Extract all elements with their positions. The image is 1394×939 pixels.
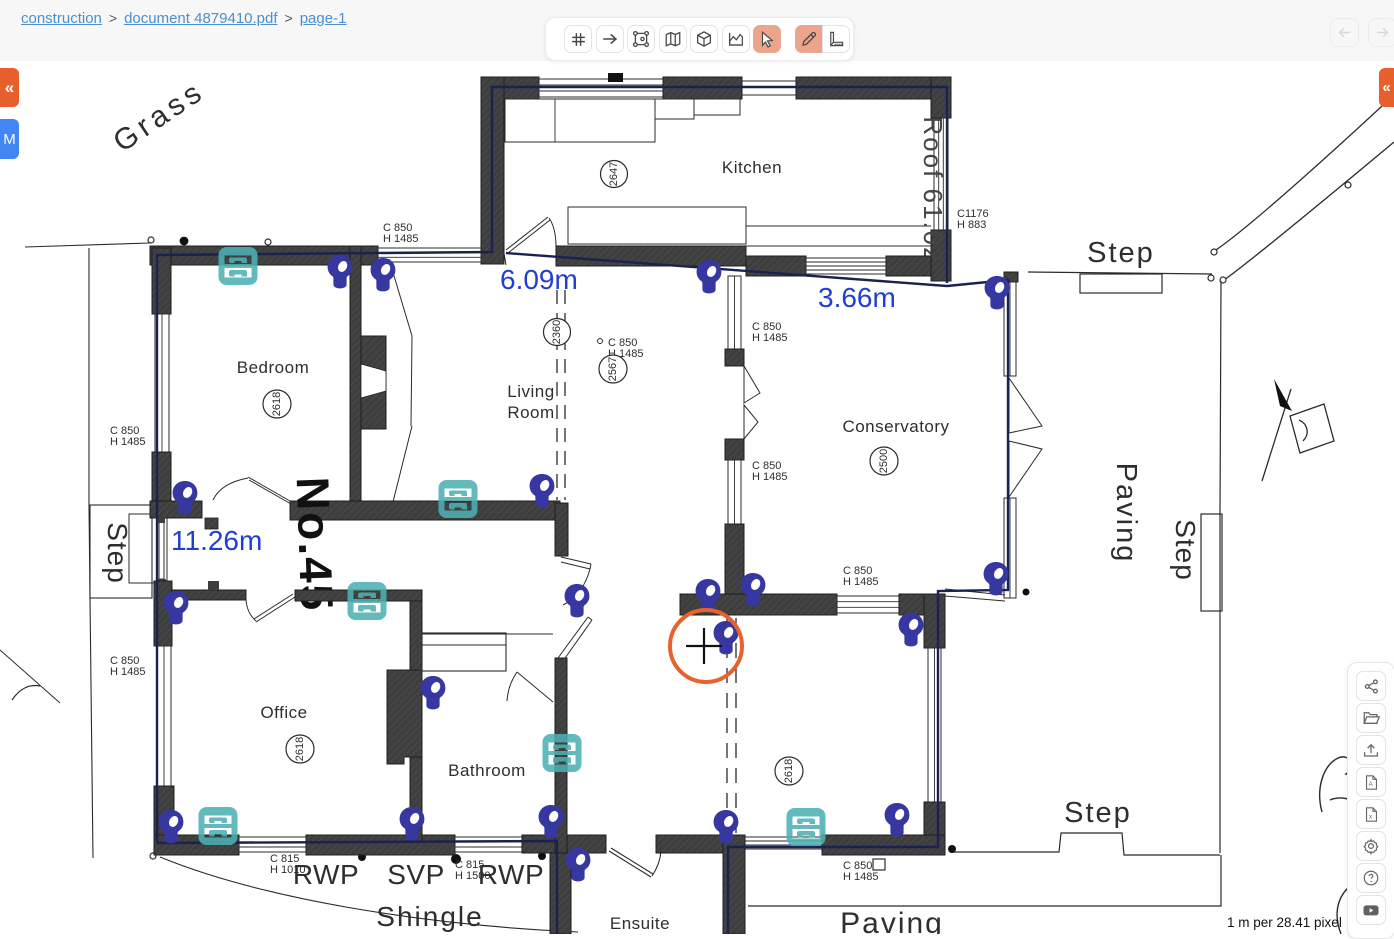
svg-text:Room: Room <box>507 403 554 422</box>
svg-text:Kitchen: Kitchen <box>722 158 782 177</box>
svg-text:Ensuite: Ensuite <box>610 914 670 933</box>
svg-text:Bedroom: Bedroom <box>237 358 309 377</box>
svg-text:Step: Step <box>1170 519 1201 581</box>
svg-text:Paving: Paving <box>1110 463 1142 564</box>
svg-text:2567: 2567 <box>607 357 619 381</box>
svg-text:Paving: Paving <box>840 907 944 934</box>
svg-text:Roof 61.02: Roof 61.02 <box>918 116 948 263</box>
svg-text:11.26m: 11.26m <box>171 525 262 556</box>
svg-text:H 883: H 883 <box>957 219 986 231</box>
svg-text:2618: 2618 <box>294 737 306 761</box>
svg-text:2360: 2360 <box>551 320 563 344</box>
svg-text:2618: 2618 <box>783 759 795 783</box>
svg-text:H 1485: H 1485 <box>752 332 787 344</box>
svg-text:RWP: RWP <box>293 859 359 890</box>
svg-text:Bathroom: Bathroom <box>448 761 526 780</box>
svg-text:Step: Step <box>102 522 133 584</box>
svg-text:H 1485: H 1485 <box>110 666 145 678</box>
svg-text:Office: Office <box>260 703 307 722</box>
svg-text:H 1485: H 1485 <box>383 233 418 245</box>
svg-text:Living: Living <box>507 382 554 401</box>
svg-text:A: A <box>1368 782 1372 788</box>
svg-text:2647: 2647 <box>608 162 620 186</box>
svg-text:3.66m: 3.66m <box>818 282 896 313</box>
svg-text:H 1485: H 1485 <box>110 436 145 448</box>
svg-text:RWP: RWP <box>478 859 544 890</box>
svg-text:x: x <box>1369 813 1373 820</box>
svg-text:Grass: Grass <box>107 74 210 159</box>
svg-text:Conservatory: Conservatory <box>842 417 949 436</box>
svg-text:SVP: SVP <box>387 859 445 890</box>
svg-text:2618: 2618 <box>271 392 283 416</box>
svg-text:Shingle: Shingle <box>376 901 483 932</box>
svg-text:H 1485: H 1485 <box>843 576 878 588</box>
svg-text:H 1485: H 1485 <box>843 871 878 883</box>
svg-text:Step: Step <box>1087 237 1155 269</box>
svg-text:2500: 2500 <box>878 449 890 473</box>
svg-text:Step: Step <box>1064 797 1132 829</box>
svg-text:6.09m: 6.09m <box>500 264 578 295</box>
svg-text:H 1485: H 1485 <box>752 471 787 483</box>
